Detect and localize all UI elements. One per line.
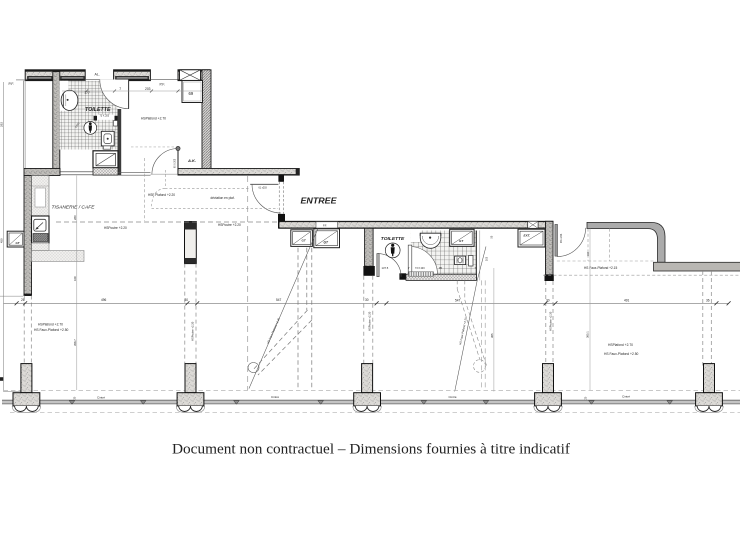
svg-text:ENTREE: ENTREE <box>301 196 338 205</box>
svg-text:HSPoutre +2.20: HSPoutre +2.20 <box>368 311 372 331</box>
svg-text:Cintré: Cintré <box>622 394 630 398</box>
svg-text:HSF Plafond +2.20: HSF Plafond +2.20 <box>148 193 175 197</box>
svg-text:30: 30 <box>546 299 550 303</box>
svg-text:HSPlafond +2.70: HSPlafond +2.70 <box>38 323 63 327</box>
svg-text:7: 7 <box>119 87 121 91</box>
svg-text:TOILETTE: TOILETTE <box>85 107 111 113</box>
svg-text:A.K.: A.K. <box>187 158 196 163</box>
svg-text:73 X 203: 73 X 203 <box>415 267 425 270</box>
svg-text:P.F.: P.F. <box>9 82 15 86</box>
svg-text:HSPoutre +2.20: HSPoutre +2.20 <box>104 226 127 230</box>
svg-text:30: 30 <box>185 298 189 302</box>
svg-text:73 X 203: 73 X 203 <box>100 115 110 118</box>
svg-text:déviation en plaf.: déviation en plaf. <box>211 196 235 200</box>
svg-text:EXT.: EXT. <box>524 234 531 238</box>
svg-text:GT: GT <box>16 241 20 245</box>
svg-text:105: 105 <box>486 256 489 261</box>
svg-text:TOILETTE: TOILETTE <box>381 236 405 242</box>
svg-text:30: 30 <box>365 298 369 302</box>
svg-text:365: 365 <box>490 333 494 338</box>
svg-text:177: 177 <box>84 91 90 95</box>
svg-text:Cintré: Cintré <box>271 395 279 399</box>
svg-text:292: 292 <box>0 122 4 127</box>
svg-text:HSPoutre +2.20: HSPoutre +2.20 <box>191 321 195 341</box>
svg-text:P.F.: P.F. <box>323 225 327 228</box>
svg-text:60 X 205: 60 X 205 <box>174 158 176 168</box>
svg-text:P.F.: P.F. <box>160 82 166 86</box>
svg-text:450: 450 <box>0 238 4 243</box>
svg-text:HS Faux-Plafond +2.50: HS Faux-Plafond +2.50 <box>604 352 639 356</box>
svg-text:HS Faux-Plafond +2.15: HS Faux-Plafond +2.15 <box>584 266 617 270</box>
svg-text:HS Faux-Plafond +2.50: HS Faux-Plafond +2.50 <box>34 328 69 332</box>
svg-text:Document non contractuel – Dim: Document non contractuel – Dimensions fo… <box>172 442 570 458</box>
svg-text:AL.: AL. <box>95 72 100 76</box>
svg-text:95: 95 <box>439 266 442 270</box>
svg-text:HSPlafond +2.70: HSPlafond +2.70 <box>608 343 633 347</box>
svg-text:358.7: 358.7 <box>73 339 77 346</box>
svg-text:69: 69 <box>189 91 194 96</box>
svg-text:Cintré: Cintré <box>449 395 457 399</box>
svg-text:547: 547 <box>455 299 461 303</box>
svg-text:36: 36 <box>706 299 710 303</box>
svg-text:137.5: 137.5 <box>382 266 389 270</box>
svg-text:HSPoutre +2.20: HSPoutre +2.20 <box>549 311 553 331</box>
svg-text:547: 547 <box>276 298 282 302</box>
svg-text:365.1: 365.1 <box>585 331 589 338</box>
svg-text:TISANERIE / CAFE: TISANERIE / CAFE <box>52 204 96 209</box>
svg-text:HSPoutre +2.20: HSPoutre +2.20 <box>218 223 241 227</box>
svg-text:496: 496 <box>101 298 107 302</box>
svg-text:109: 109 <box>73 276 77 281</box>
svg-text:HSPlafond +2.70: HSPlafond +2.70 <box>141 117 166 121</box>
svg-text:90 x 203: 90 x 203 <box>560 233 563 243</box>
svg-text:183: 183 <box>587 251 590 256</box>
svg-text:491: 491 <box>624 299 630 303</box>
svg-text:280: 280 <box>73 215 77 220</box>
svg-text:26: 26 <box>21 298 25 302</box>
svg-text:61 x203: 61 x203 <box>259 187 268 189</box>
svg-text:Cintré: Cintré <box>97 395 105 399</box>
svg-text:203: 203 <box>145 87 151 91</box>
